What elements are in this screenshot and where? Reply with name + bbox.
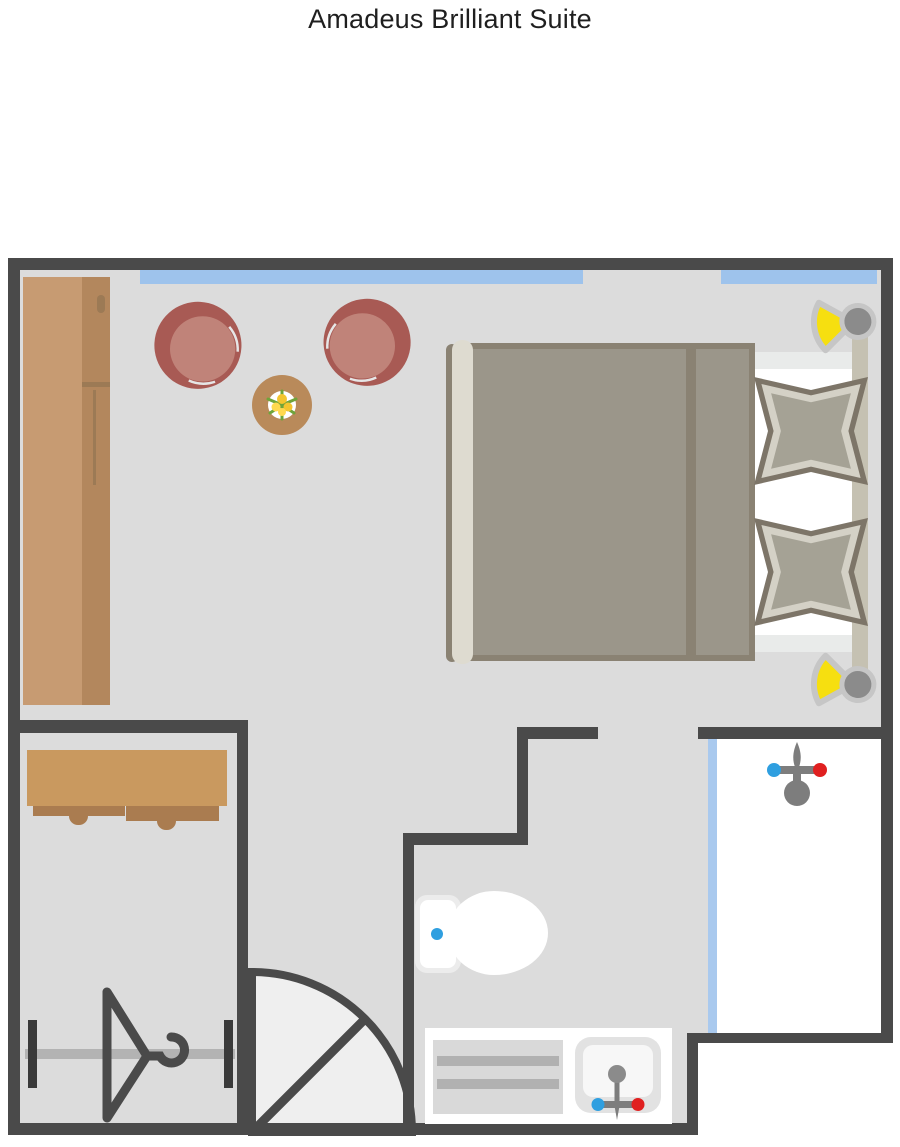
cold-handle: [592, 1098, 605, 1111]
hot-handle: [813, 763, 827, 777]
desk-drawer-left: [33, 806, 125, 816]
wardrobe-door-right: [82, 277, 110, 705]
wall-notch-vertical: [687, 1033, 698, 1135]
wardrobe-door-left: [23, 277, 82, 705]
wardrobe: [23, 277, 110, 705]
towel-top: [437, 1056, 559, 1066]
plan-notch-cutout: [698, 1043, 900, 1147]
page-title: Amadeus Brilliant Suite: [0, 4, 900, 35]
entry-door-swing: [243, 962, 423, 1140]
rail-bracket-right: [224, 1020, 233, 1088]
hanger-icon: [85, 980, 190, 1130]
wall-closet-top: [8, 720, 248, 733]
wall-toilet-jog: [403, 833, 528, 845]
wall-toilet-top: [517, 727, 598, 739]
wall-closet-right: [237, 720, 248, 1135]
wall-shower-top: [698, 727, 893, 739]
cold-handle: [767, 763, 781, 777]
shower-faucet-icon: [764, 740, 830, 808]
footboard: [452, 340, 473, 664]
wardrobe-handle-line: [93, 390, 96, 485]
wall-toilet-left: [517, 727, 528, 845]
pillow-bottom-icon: [750, 514, 872, 630]
wall-left: [8, 258, 20, 1135]
desk-drawer-right: [126, 806, 219, 821]
desk: [27, 750, 227, 806]
floor-plan-canvas: Amadeus Brilliant Suite: [0, 0, 900, 1147]
bedside-lamp-bottom-icon: [804, 647, 890, 719]
hot-handle: [632, 1098, 645, 1111]
wardrobe-handle-icon: [97, 295, 105, 313]
bedside-lamp-top-icon: [804, 287, 890, 359]
duvet: [455, 343, 755, 661]
flowers-icon: [262, 385, 302, 425]
toilet-flush-button: [431, 928, 443, 940]
wall-toilet-vertical: [403, 833, 414, 1135]
duvet-fold: [686, 349, 696, 655]
faucet-spout: [793, 742, 800, 767]
sink-faucet-icon: [590, 1062, 646, 1126]
lamp-shade: [840, 666, 876, 702]
faucet-head: [608, 1065, 626, 1083]
rail-bracket-left: [28, 1020, 37, 1088]
drain: [784, 780, 810, 806]
pillow-top-icon: [750, 373, 872, 489]
towel-shelf: [433, 1040, 563, 1114]
lamp-shade: [840, 303, 876, 339]
shower-glass-door: [708, 739, 717, 1033]
wall-right: [881, 258, 893, 1043]
wall-notch-horizontal: [687, 1033, 893, 1043]
wardrobe-seam: [82, 382, 110, 387]
wall-top: [8, 258, 893, 270]
towel-bottom: [437, 1079, 559, 1089]
